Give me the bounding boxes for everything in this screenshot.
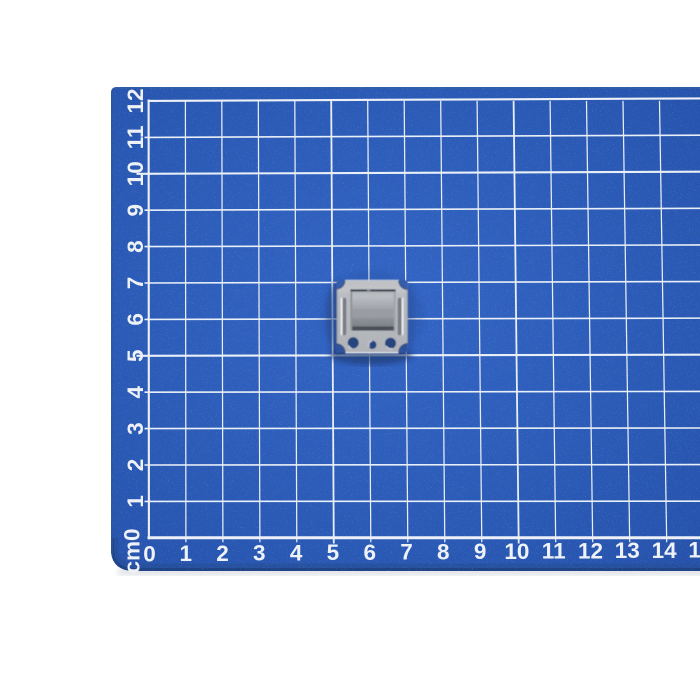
svg-text:2: 2 (216, 541, 229, 566)
svg-text:7: 7 (123, 277, 148, 290)
svg-text:13: 13 (615, 538, 640, 563)
svg-text:11: 11 (542, 539, 566, 564)
svg-text:14: 14 (652, 538, 678, 563)
svg-text:8: 8 (437, 539, 450, 564)
svg-text:15: 15 (688, 538, 700, 563)
svg-text:5: 5 (123, 350, 148, 363)
svg-text:cm0: cm0 (120, 528, 145, 573)
svg-text:6: 6 (363, 540, 376, 565)
svg-text:4: 4 (290, 540, 303, 565)
svg-text:12: 12 (123, 88, 148, 113)
svg-text:9: 9 (123, 204, 148, 217)
svg-text:8: 8 (123, 240, 148, 253)
svg-text:11: 11 (123, 126, 148, 150)
svg-text:1: 1 (179, 541, 192, 566)
svg-text:3: 3 (123, 422, 148, 435)
svg-text:3: 3 (253, 541, 266, 566)
svg-text:7: 7 (400, 540, 413, 565)
svg-text:1: 1 (123, 495, 148, 508)
svg-text:9: 9 (474, 539, 487, 564)
svg-text:6: 6 (123, 313, 148, 326)
svg-text:12: 12 (578, 538, 603, 563)
svg-text:5: 5 (327, 540, 340, 565)
svg-text:2: 2 (123, 459, 148, 472)
svg-text:10: 10 (504, 539, 529, 564)
svg-text:4: 4 (123, 385, 148, 398)
svg-text:10: 10 (123, 161, 148, 186)
svg-text:0: 0 (143, 541, 156, 566)
